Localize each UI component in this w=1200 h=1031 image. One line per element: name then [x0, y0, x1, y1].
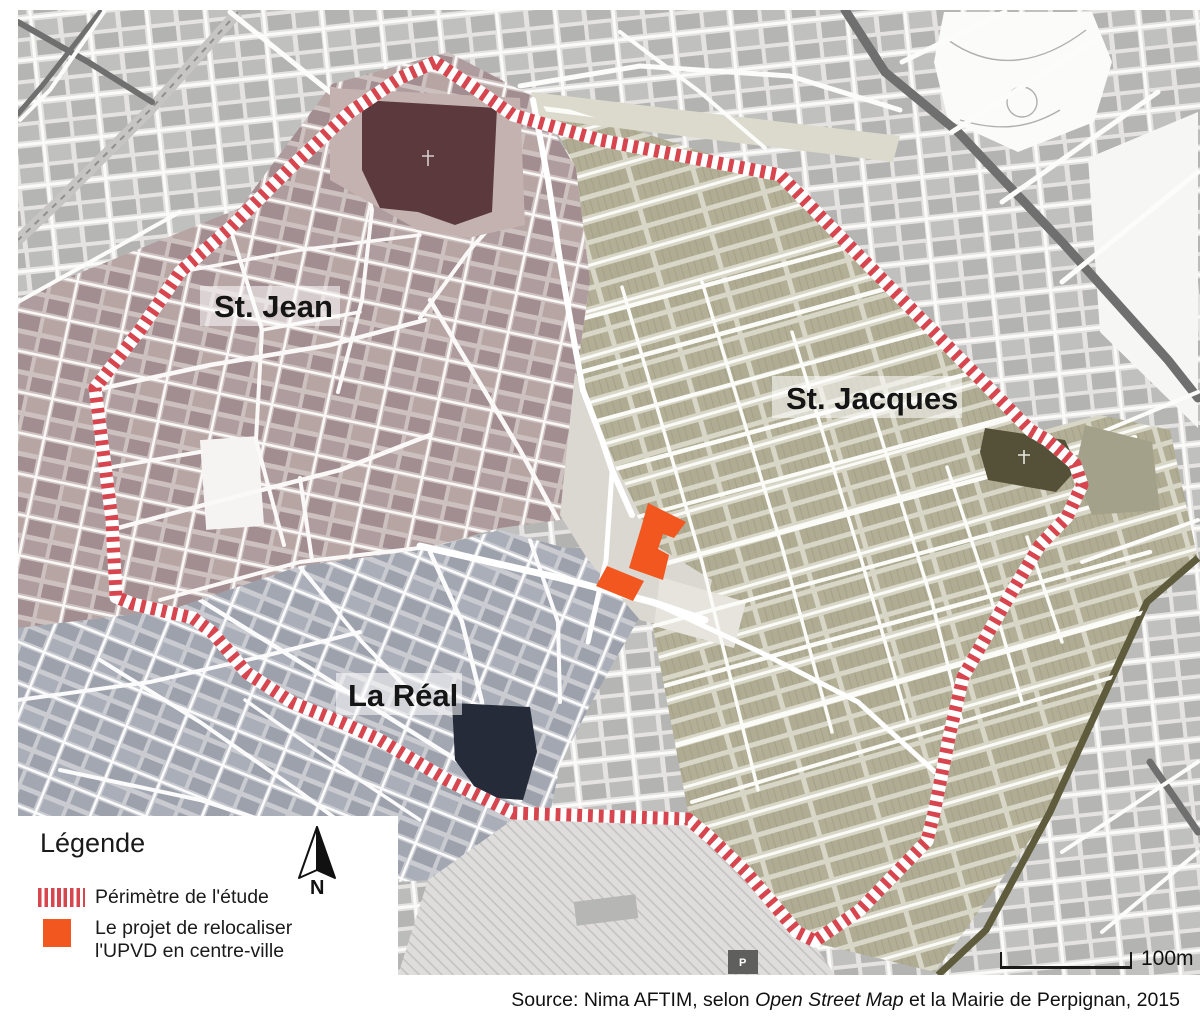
scale-bar-label: 100m [1141, 948, 1194, 969]
north-arrow-icon: N [294, 824, 340, 896]
source-attribution: Source: Nima AFTIM, selon Open Street Ma… [511, 989, 1180, 1012]
page-root: { "map": { "districts": [ {"id": "st-jea… [0, 0, 1200, 1031]
legend-item-project-label: Le projet de relocaliser l'UPVD en centr… [95, 917, 292, 963]
cathedral-st-jean [362, 100, 497, 225]
plaza-st-jean [200, 436, 264, 530]
label-la-real: La Réal [348, 678, 458, 713]
perimeter-stripe-icon [38, 888, 85, 907]
project-square-icon [43, 919, 71, 947]
legend-item-perimeter: Périmètre de l'étude [38, 886, 269, 909]
legend-panel: Légende Périmètre de l'étude Le projet d… [18, 816, 398, 975]
legend-item-project: Le projet de relocaliser l'UPVD en centr… [38, 917, 292, 963]
legend-title: Légende [40, 828, 145, 859]
label-st-jean: St. Jean [214, 289, 333, 324]
source-italic-part: Open Street Map [755, 989, 904, 1011]
scale-bar: 100m [1000, 948, 1194, 969]
scale-bar-bracket [1000, 952, 1132, 969]
north-label: N [310, 877, 324, 896]
legend-item-perimeter-label: Périmètre de l'étude [95, 886, 269, 909]
label-st-jacques: St. Jacques [786, 381, 958, 416]
parking-letter: P [739, 957, 746, 969]
